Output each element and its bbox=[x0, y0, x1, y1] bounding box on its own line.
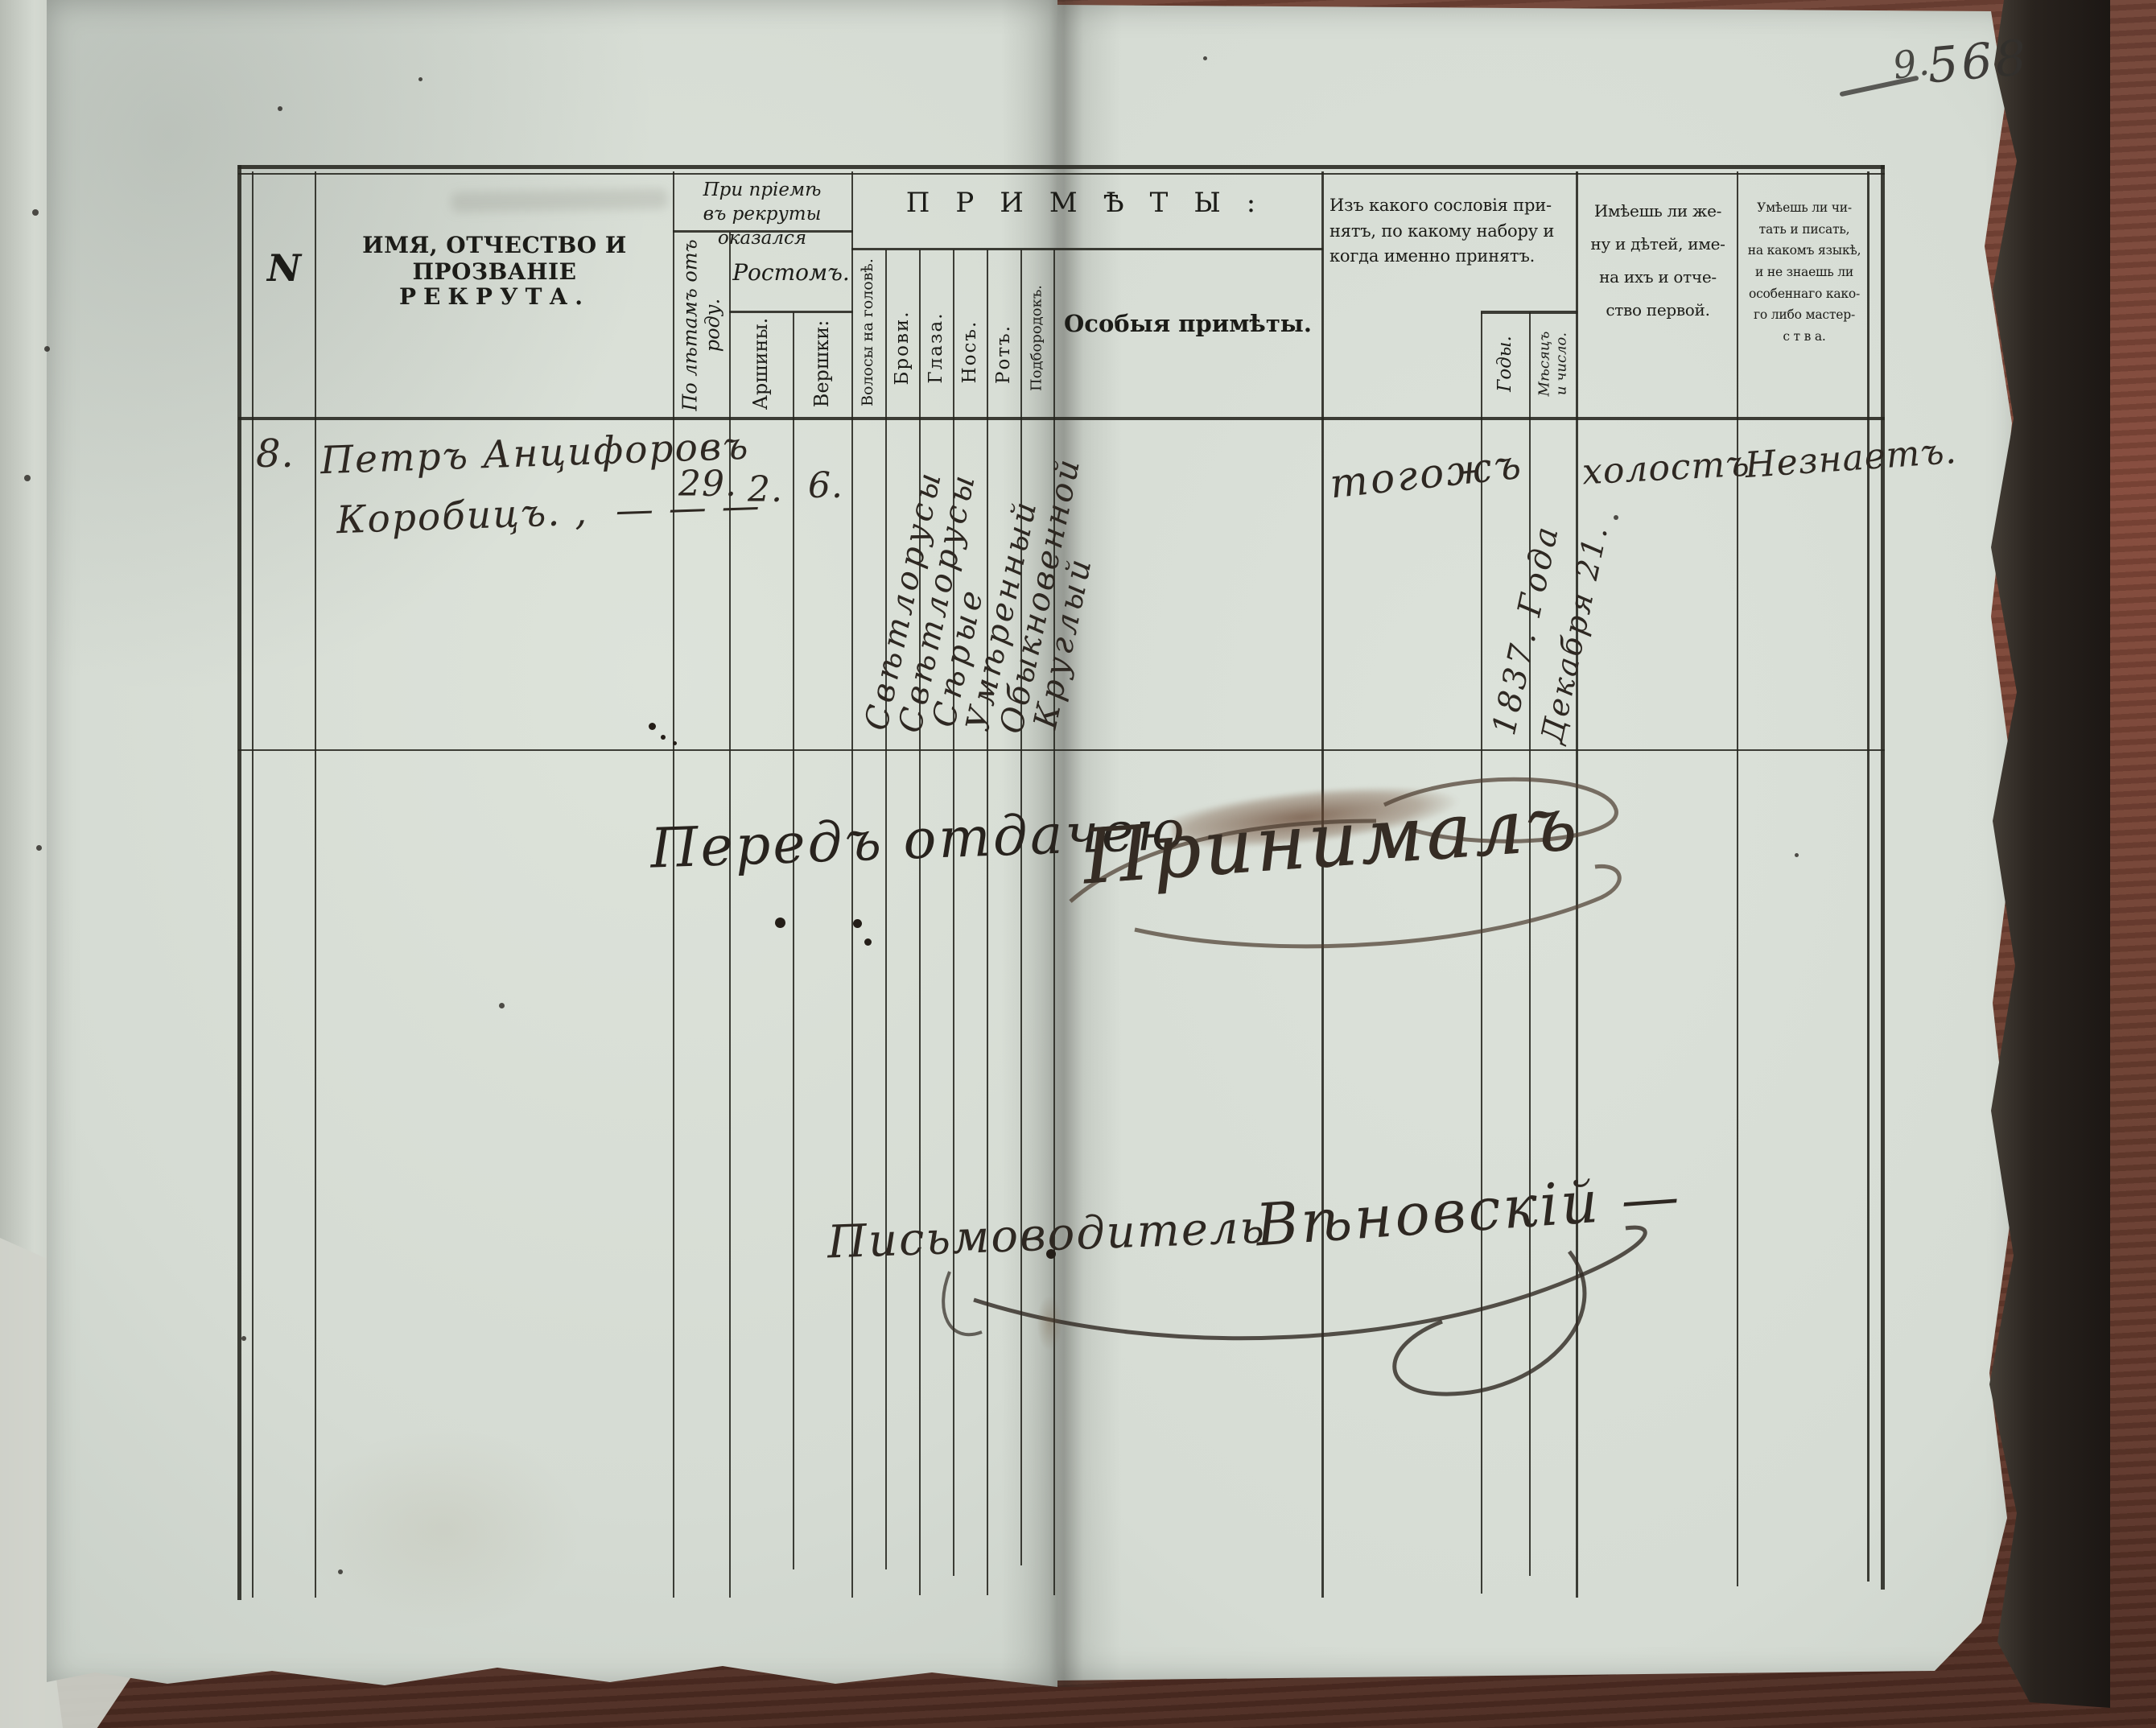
ink-dot bbox=[649, 723, 656, 730]
column-header-month-day: Мѣсяцъ и число. bbox=[1536, 332, 1569, 397]
paper-speck bbox=[32, 209, 39, 216]
column-header-family: Имѣешь ли же- ну и дѣтей, име- на ихъ и … bbox=[1581, 195, 1735, 327]
column-header-special-marks: Особыя примѣты. bbox=[1056, 310, 1320, 337]
table-rule-vertical bbox=[851, 171, 853, 1598]
paper-speck bbox=[44, 346, 50, 352]
table-rule-vertical bbox=[885, 250, 887, 1569]
column-header-age: По лѣтамъ отъ роду. bbox=[679, 239, 723, 410]
book-block-right-edge bbox=[1981, 0, 2110, 1708]
entry-family-status: холостъ bbox=[1581, 443, 1751, 493]
paper-speck bbox=[1614, 515, 1618, 520]
table-rule-horizontal bbox=[238, 417, 1885, 420]
column-header-years: Годы. bbox=[1494, 336, 1515, 392]
ink-dot bbox=[661, 735, 666, 740]
ink-dot bbox=[864, 938, 872, 946]
ink-dot bbox=[1046, 1249, 1056, 1259]
folio-number: 568 bbox=[1925, 30, 2031, 95]
table-rule-vertical bbox=[919, 250, 921, 1595]
entry-vershoks: 6. bbox=[808, 465, 843, 506]
table-rule-vertical bbox=[1881, 165, 1885, 1590]
column-header-number: N bbox=[254, 246, 314, 290]
column-header-chin: Подбородокъ. bbox=[1029, 285, 1046, 391]
table-rule-vertical bbox=[315, 171, 316, 1598]
paper-speck bbox=[36, 845, 42, 851]
column-header-nose: Носъ. bbox=[959, 320, 980, 384]
table-rule-horizontal bbox=[238, 165, 1885, 169]
paper-speck bbox=[338, 1569, 343, 1574]
table-rule-horizontal bbox=[238, 173, 1885, 175]
column-header-arshins: Аршины. bbox=[750, 318, 773, 410]
paper-speck bbox=[1203, 56, 1207, 60]
table-rule-horizontal bbox=[729, 311, 853, 313]
paper-speck bbox=[499, 1003, 505, 1008]
table-rule-vertical bbox=[1867, 171, 1869, 1582]
column-header-estate: Изъ какого сословія при- нятъ, по какому… bbox=[1329, 193, 1576, 270]
column-header-name-line1: ИМЯ, ОТЧЕСТВО И ПРОЗВАНІЕ bbox=[316, 232, 673, 285]
table-rule-horizontal bbox=[851, 248, 1323, 250]
paper-speck bbox=[1795, 853, 1799, 857]
paper-speck bbox=[24, 475, 31, 481]
column-header-literacy: Умѣешь ли чи- тать и писать, на какомъ я… bbox=[1743, 197, 1865, 348]
column-header-mouth: Ротъ. bbox=[993, 324, 1014, 384]
ink-dot bbox=[673, 741, 677, 745]
column-header-eyes: Глаза. bbox=[925, 311, 946, 383]
ledger-photo: 9. 568 N ИМЯ, ОТЧЕСТВО И ПРОЗВАНІЕ РЕКРУ… bbox=[0, 0, 2156, 1728]
ink-offset-ghost bbox=[451, 188, 668, 213]
paper-stain bbox=[241, 1384, 644, 1674]
table-rule-horizontal bbox=[1481, 311, 1577, 314]
table-rule-horizontal bbox=[238, 749, 1885, 751]
entry-age: 29. bbox=[678, 464, 737, 505]
paper-speck bbox=[418, 77, 423, 81]
paper-speck bbox=[241, 1336, 246, 1341]
table-rule-vertical bbox=[252, 171, 254, 1598]
column-group-height: Ростомъ. bbox=[731, 259, 851, 286]
column-header-vershoks: Вершки: bbox=[811, 320, 834, 408]
column-header-name-line2: РЕКРУТА. bbox=[316, 283, 673, 310]
column-header-hair: Волосы на головѣ. bbox=[860, 258, 877, 406]
ink-dot bbox=[853, 919, 862, 928]
table-rule-vertical bbox=[793, 312, 794, 1569]
entry-arshins: 2. bbox=[748, 469, 783, 510]
ink-dot bbox=[775, 918, 785, 928]
table-rule-vertical bbox=[673, 171, 674, 1598]
table-rule-vertical bbox=[237, 165, 241, 1600]
entry-number: 8. bbox=[256, 431, 295, 476]
gutter-stain bbox=[1032, 1285, 1067, 1362]
column-group-marks: ПРИМѢТЫ: bbox=[851, 187, 1323, 219]
column-header-brows: Брови. bbox=[892, 310, 913, 385]
paper-speck bbox=[278, 106, 282, 111]
table-rule-vertical bbox=[1737, 171, 1738, 1586]
